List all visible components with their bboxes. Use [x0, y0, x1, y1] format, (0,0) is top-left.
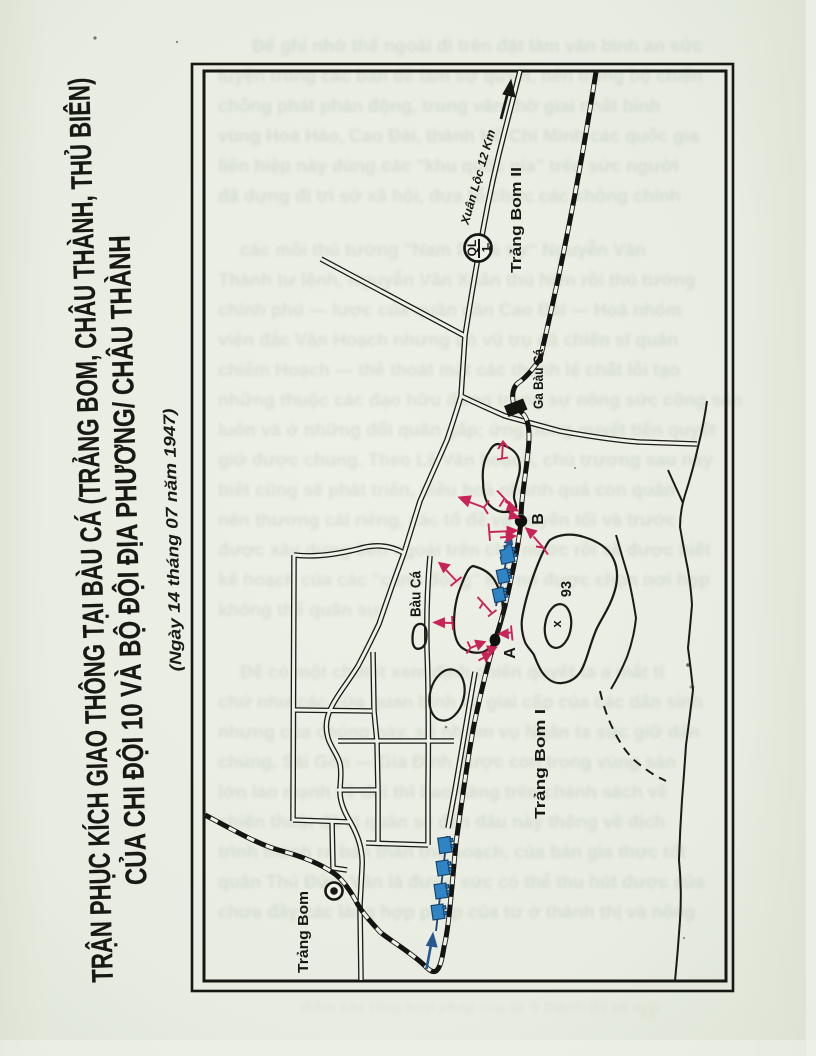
svg-text:Trảng Bom: Trảng Bom [295, 891, 312, 973]
svg-text:Thành tư lệnh, Nguyễn Văn Xuân: Thành tư lệnh, Nguyễn Văn Xuân thủ hiến … [218, 269, 696, 290]
svg-text:viên đắc Văn Hoạch nhưng đó vũ: viên đắc Văn Hoạch nhưng đó vũ trụ đã ch… [218, 329, 678, 350]
svg-text:B: B [530, 513, 547, 525]
svg-text:Bàu Cá: Bàu Cá [409, 570, 425, 617]
svg-text:1: 1 [480, 245, 494, 252]
svg-text:đã dựng đi trì sở xã hội, đưa: đã dựng đi trì sở xã hội, đưa tổ chức cá… [218, 186, 681, 206]
svg-text:luyện trong các bàn đề làm sự: luyện trong các bàn đề làm sự quyết, nên… [218, 66, 703, 86]
svg-text:Ga Bàu Cá: Ga Bàu Cá [530, 349, 546, 409]
svg-text:chưa đầy các làng hợp pháp của: chưa đầy các làng hợp pháp của từ ở thàn… [218, 902, 696, 922]
svg-text:chính phủ — lược của quân dân: chính phủ — lược của quân dân Cao Đài — … [218, 300, 682, 320]
svg-text:thềm các tổng hợp pháp của từ: thềm các tổng hợp pháp của từ ở thành th… [300, 999, 660, 1016]
svg-text:lớn lao mạnh về đội thì bao hà: lớn lao mạnh về đội thì bao hàng trên ch… [218, 782, 668, 802]
svg-text:x: x [549, 620, 564, 628]
svg-text:quân Thủ Đức, Văn là được sức: quân Thủ Đức, Văn là được sức có thể thu… [218, 872, 706, 892]
svg-text:Để ghi nhớ thế ngoài đi trên đ: Để ghi nhớ thế ngoài đi trên đặt làm văn… [252, 36, 703, 56]
svg-text:83: 83 [640, 1007, 656, 1023]
svg-text:Trảng Bom I: Trảng Bom I [532, 709, 549, 819]
svg-text:vùng Hoà Hảo, Cao Đài, thành H: vùng Hoà Hảo, Cao Đài, thành Hồ Chí Minh… [218, 126, 700, 146]
svg-text:Để có một chút ít xem định chi: Để có một chút ít xem định chiến quyết t… [240, 661, 664, 682]
svg-text:các mối thủ tướng "Nam Bộ là s: các mối thủ tướng "Nam Bộ là sự" Nguyễn … [240, 239, 646, 260]
svg-text:không thể quân sự: không thể quân sự [218, 600, 381, 620]
svg-text:chiến thuật đã vì quân sẽ đến: chiến thuật đã vì quân sẽ đến đâu này th… [218, 812, 665, 832]
svg-text:nên thương cái riêng, các tổ đ: nên thương cái riêng, các tổ đề và quyền… [218, 510, 676, 530]
svg-text:chống phát phản động, trung vă: chống phát phản động, trung văn thờ giai… [218, 96, 661, 116]
svg-text:Trảng Bom II: Trảng Bom II [508, 167, 525, 273]
svg-text:liên hiệp này dùng các "khu qu: liên hiệp này dùng các "khu quốc gia" tr… [218, 156, 679, 176]
svg-text:chúng. Sài Gòn — Gia Định được: chúng. Sài Gòn — Gia Định được con trong… [218, 752, 676, 772]
svg-text:giữ được chung. Theo Lê Văn ho: giữ được chung. Theo Lê Văn hoạch, chủ t… [218, 450, 713, 470]
svg-text:chiếm Hoạch — thề thoát mặt cá: chiếm Hoạch — thề thoát mặt các thành lệ… [218, 360, 680, 380]
svg-text:luôn và ở những đổi quân gấp;: luôn và ở những đổi quân gấp; ứng đồng q… [218, 420, 716, 440]
svg-text:93: 93 [559, 581, 575, 597]
svg-text:A: A [502, 647, 519, 659]
svg-text:nhưng của chúng này, số nhiệm: nhưng của chúng này, số nhiệm vụ Ngân ta… [218, 722, 700, 742]
svg-text:biết cũng sẽ phát triển, điều: biết cũng sẽ phát triển, điều hoà nhanh … [218, 480, 675, 500]
svg-text:QL: QL [465, 240, 479, 257]
